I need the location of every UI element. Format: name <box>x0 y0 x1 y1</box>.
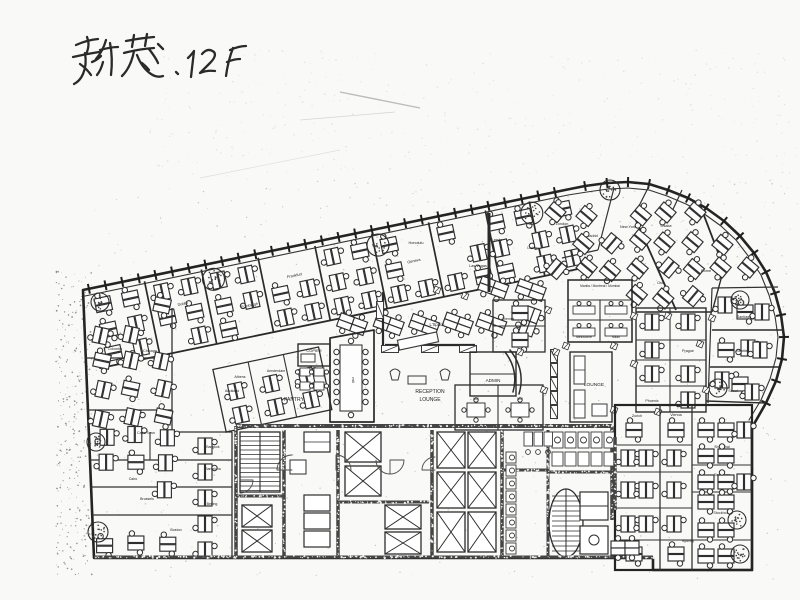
svg-text:Honolulu: Honolulu <box>409 241 424 245</box>
svg-text:Osaka: Osaka <box>661 224 673 228</box>
svg-text:PANTRY: PANTRY <box>284 397 304 403</box>
svg-text:LOUNGE: LOUNGE <box>419 397 441 403</box>
svg-text:Beijing: Beijing <box>207 502 218 506</box>
svg-text:Cape Town: Cape Town <box>137 431 155 435</box>
svg-text:COPIER: COPIER <box>306 348 321 353</box>
svg-text:New York: New York <box>620 225 636 229</box>
svg-text:Chicago: Chicago <box>143 349 157 353</box>
svg-text:LOUNGE: LOUNGE <box>584 382 604 388</box>
svg-text:Milan: Milan <box>612 335 620 339</box>
svg-text:Barcelona: Barcelona <box>205 467 220 471</box>
svg-text:mtl: mtl <box>351 377 356 382</box>
svg-text:Athens: Athens <box>234 375 245 379</box>
svg-text:MIll: MIll <box>517 397 523 401</box>
svg-text:Rome: Rome <box>701 269 711 273</box>
svg-text:Vienna: Vienna <box>670 413 682 417</box>
svg-text:Manila / Montreal / Mumbai: Manila / Montreal / Mumbai <box>580 284 620 288</box>
svg-text:Bangkok: Bangkok <box>206 445 219 449</box>
svg-text:Prague: Prague <box>682 349 694 353</box>
svg-text:Boston: Boston <box>170 528 181 532</box>
svg-text:Brussels: Brussels <box>140 497 154 501</box>
svg-text:Seattle: Seattle <box>736 349 747 353</box>
svg-text:L'Space: L'Space <box>429 322 445 327</box>
svg-text:Las Vegas: Las Vegas <box>469 264 487 268</box>
svg-text:Santiago: Santiago <box>737 315 751 319</box>
svg-text:Melbourne: Melbourne <box>576 335 592 339</box>
svg-text:Zurich: Zurich <box>632 414 642 418</box>
svg-text:Amsterdam: Amsterdam <box>267 369 285 373</box>
svg-text:RECEPTION: RECEPTION <box>415 389 445 395</box>
svg-text:Chennai: Chennai <box>502 317 515 321</box>
svg-text:ADMIN: ADMIN <box>486 378 501 383</box>
svg-text:Colombo: Colombo <box>108 347 122 351</box>
svg-text:Cairo: Cairo <box>129 477 138 481</box>
svg-text:Leeds: Leeds <box>492 238 502 242</box>
svg-text:Seoul: Seoul <box>728 389 737 393</box>
svg-text:Auckland: Auckland <box>225 389 239 393</box>
svg-text:MIll: MIll <box>473 397 479 401</box>
svg-text:Lisbon: Lisbon <box>527 246 538 250</box>
svg-text:Oslo: Oslo <box>657 281 665 285</box>
svg-text:Phoenix: Phoenix <box>645 399 658 403</box>
svg-text:Sydney: Sydney <box>682 539 694 543</box>
